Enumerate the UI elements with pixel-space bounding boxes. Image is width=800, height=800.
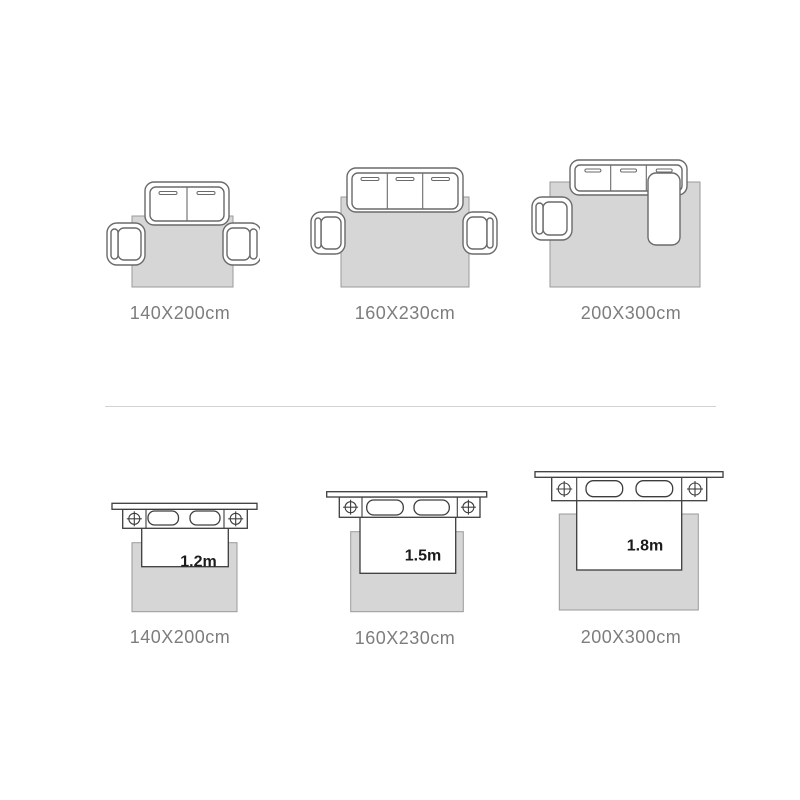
section-divider (105, 406, 716, 407)
rug-size-guide: 140X200cm 160X230cm 200X300cm 1 (0, 0, 800, 800)
armchair-right-icon (463, 212, 497, 254)
armchair-left-icon (311, 212, 345, 254)
sofa-rug-size-label-1: 140X200cm (100, 303, 260, 323)
pillow (367, 500, 404, 515)
bed-rug-size-label-1: 140X200cm (100, 627, 260, 647)
bed-rug-diagram-140x200: 1.2m (100, 490, 260, 640)
headboard-band (552, 477, 707, 500)
bed-width-text: 1.8m (627, 538, 663, 555)
pillow (636, 481, 673, 497)
armchair-left-icon (532, 197, 572, 240)
headboard-bar (327, 492, 487, 497)
armchair-right-icon (223, 223, 260, 265)
sofa-rug-diagram-140x200 (100, 150, 260, 290)
rug (132, 216, 233, 287)
bed-width-text: 1.5m (405, 548, 441, 565)
bed-width-text: 1.2m (180, 554, 216, 571)
pillow (148, 511, 179, 525)
pillow (414, 500, 449, 515)
bed-rug-diagram-160x230: 1.5m (315, 485, 495, 640)
bed-rug-size-label-2: 160X230cm (315, 628, 495, 648)
headboard-bar (535, 472, 723, 478)
pillow (190, 511, 220, 525)
headboard-band (339, 497, 480, 517)
bed-rug-size-label-3: 200X300cm (531, 627, 731, 647)
sofa-rug-diagram-160x230 (305, 150, 505, 290)
pillow (586, 481, 623, 497)
headboard-bar (112, 503, 257, 509)
sofa-rug-size-label-3: 200X300cm (531, 303, 731, 323)
two-seat-sofa-icon (145, 182, 229, 225)
bed-rug-diagram-200x300: 1.8m (525, 465, 735, 640)
three-seat-sofa-icon (347, 168, 463, 212)
sofa-rug-diagram-200x300 (520, 140, 720, 290)
chaise-section (648, 173, 680, 245)
armchair-left-icon (107, 223, 145, 265)
sofa-rug-size-label-2: 160X230cm (305, 303, 505, 323)
